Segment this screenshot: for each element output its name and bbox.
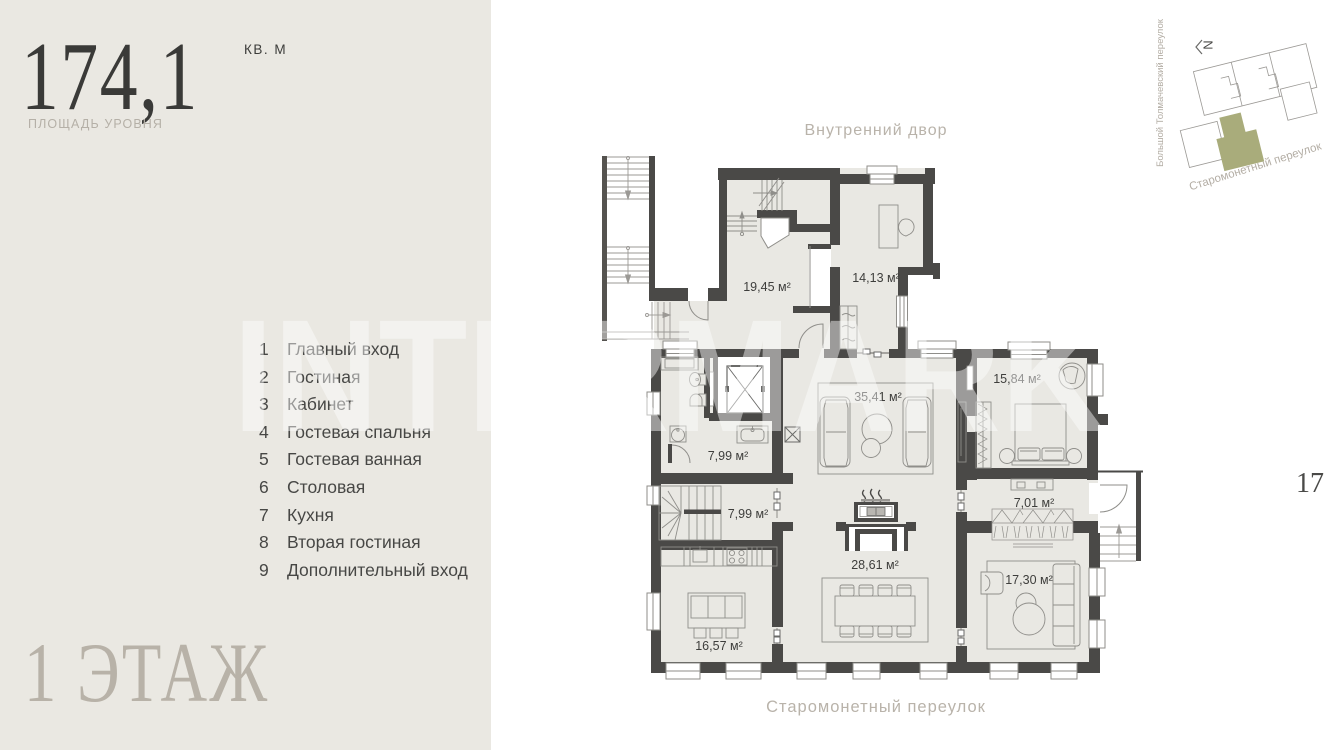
svg-text:28,61 м²: 28,61 м² [851, 558, 899, 572]
svg-text:19,45 м²: 19,45 м² [743, 280, 791, 294]
svg-text:15,84 м²: 15,84 м² [993, 372, 1041, 386]
svg-text:Большой Толмачевский переулок: Большой Толмачевский переулок [1155, 18, 1166, 167]
svg-text:17: 17 [1296, 468, 1324, 499]
svg-text:7,99 м²: 7,99 м² [728, 507, 769, 521]
svg-text:7,01 м²: 7,01 м² [1014, 496, 1055, 510]
svg-text:Старомонетный переулок: Старомонетный переулок [1188, 140, 1324, 193]
svg-text:Внутренний двор: Внутренний двор [804, 122, 947, 139]
svg-text:14,13 м²: 14,13 м² [852, 271, 900, 285]
svg-text:Старомонетный переулок: Старомонетный переулок [766, 698, 986, 716]
svg-text:35,41 м²: 35,41 м² [854, 390, 902, 404]
svg-text:17,30 м²: 17,30 м² [1005, 573, 1053, 587]
svg-text:16,57 м²: 16,57 м² [695, 639, 743, 653]
svg-text:N: N [1200, 40, 1215, 49]
svg-text:7,99 м²: 7,99 м² [708, 449, 749, 463]
